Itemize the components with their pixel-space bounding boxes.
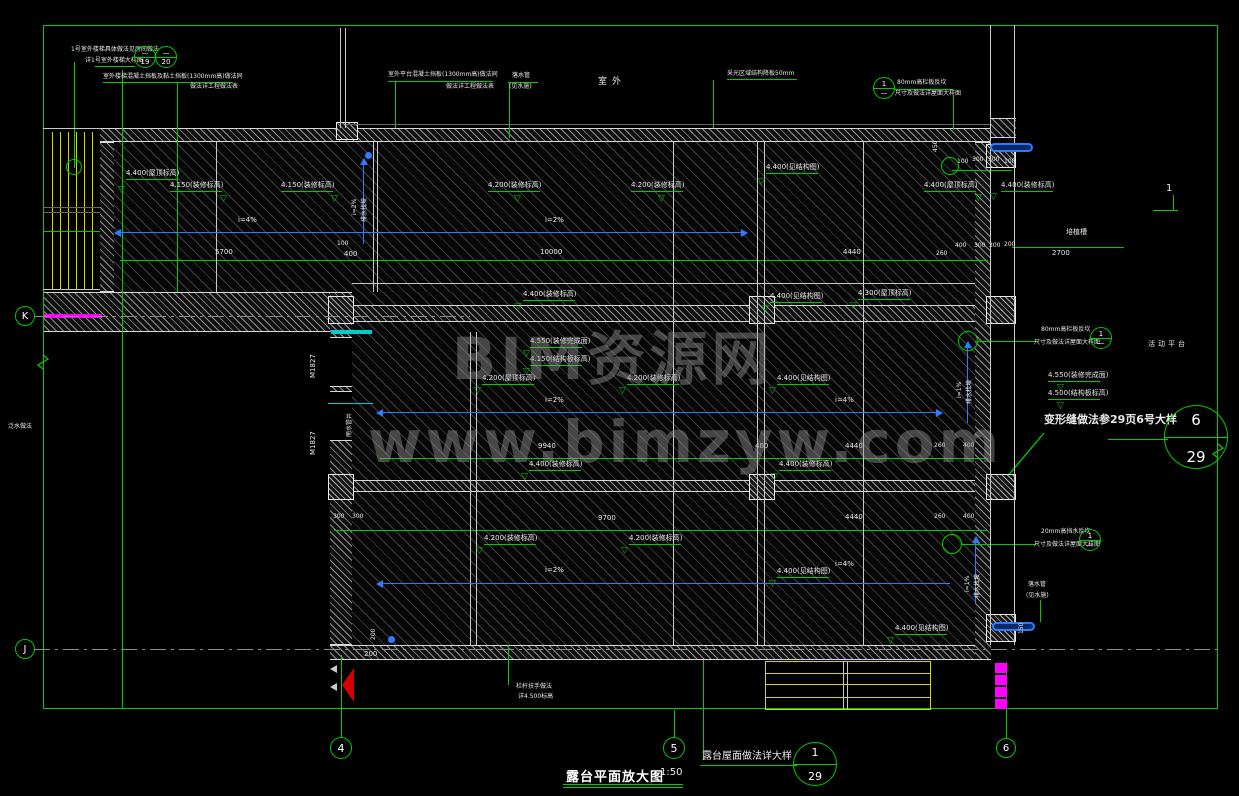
drawing-line [962, 544, 1036, 545]
drawing-line [930, 661, 931, 710]
annotation-text: 200 [1004, 242, 1015, 248]
drawing-line [43, 128, 100, 129]
annotation-text: 详4.500标高 [518, 694, 553, 700]
annotation-text: 落水管 [512, 73, 530, 79]
elevation-label: 4.400(见结构图) [895, 625, 949, 632]
elevation-label: 4.200(装修标高) [484, 535, 538, 542]
wall [43, 292, 352, 332]
annotation-text: 80mm高栏板反坎 [897, 80, 946, 86]
annotation-text: 300 [352, 514, 363, 520]
annotation-text: 4440 [845, 514, 863, 521]
elevation-underline [1048, 381, 1100, 382]
elevation-underline [126, 179, 178, 180]
elevation-triangle: ▽ [220, 195, 227, 204]
annotation-text: (见水施) [509, 84, 532, 90]
elevation-label: 4.400(见结构图) [766, 164, 820, 171]
elevation-label: 4.200(装修标高) [488, 182, 542, 189]
annotation-text: 400 [955, 243, 966, 249]
annotation-text: M1827 [310, 354, 317, 378]
stair-treads [45, 132, 99, 287]
drawing-line [674, 710, 675, 738]
drawing-line [508, 645, 509, 685]
watermark-line2: www.bimzyw.com [368, 408, 1003, 476]
wall [352, 480, 975, 492]
elevation-label: 4.150(装修标高) [170, 182, 224, 189]
annotation-text: 活动平台 [1148, 341, 1188, 348]
drawing-line [120, 232, 745, 233]
elevation-label: 4.400(见结构图) [777, 568, 831, 575]
drawing-line [43, 207, 100, 208]
drain-pipe [990, 143, 1033, 152]
wall [990, 118, 1016, 138]
drawing-line [43, 231, 100, 232]
annotation-text: 5700 [215, 249, 233, 256]
drawing-line [978, 341, 1036, 342]
elevation-underline [895, 634, 947, 635]
grid-bubble: 4 [330, 737, 352, 759]
stair-treads [45, 276, 99, 289]
drawing-line [765, 684, 931, 685]
annotation-text: 100 [337, 241, 348, 247]
drawing-line [334, 530, 988, 531]
watermark-line1: BIM资源网 [452, 312, 774, 396]
wall [330, 386, 352, 392]
drawing-line [1173, 195, 1174, 211]
drawing-line [727, 79, 797, 80]
elevation-label: 4.300(屋顶标高) [858, 290, 912, 297]
elevation-underline [777, 384, 829, 385]
drawing-line [43, 25, 1218, 26]
grid-dash-line [34, 649, 1217, 650]
annotation-text: i=4% [835, 397, 854, 404]
elevation-underline [629, 544, 681, 545]
section-flag [342, 668, 354, 702]
annotation-text: 4440 [843, 249, 861, 256]
elevation-triangle: ▽ [514, 195, 521, 204]
elevation-triangle: ▽ [975, 194, 982, 203]
annotation-text: 260 [936, 251, 947, 257]
annotation-text: 150 [1019, 623, 1025, 634]
drawing-title: 露台平面放大图 [566, 766, 664, 785]
elevation-triangle: ▽ [758, 178, 765, 187]
detail-bubble: 629 [1164, 405, 1228, 469]
drawing-line [765, 709, 931, 710]
magenta-block [995, 663, 1007, 673]
annotation-text: 300 [972, 157, 983, 163]
drawing-line [377, 142, 378, 292]
wall [100, 128, 990, 142]
elevation-label: 4.400(屋顶标高) [924, 182, 978, 189]
drawing-line [863, 142, 864, 645]
elevation-triangle: ▽ [1057, 402, 1064, 411]
drawing-line [952, 170, 1012, 171]
annotation-text: 10000 [540, 249, 562, 256]
elevation-underline [777, 577, 829, 578]
annotation-text: 300 [333, 514, 344, 520]
elevation-triangle: ▽ [850, 302, 857, 311]
drawing-line [74, 62, 75, 168]
wall [330, 645, 990, 660]
drawing-line [990, 25, 991, 645]
detail-bubble: —20 [155, 46, 177, 68]
arrowhead [376, 580, 383, 588]
annotation-text: 做法详工程做法表 [190, 84, 238, 90]
elevation-triangle: ▽ [118, 186, 125, 195]
annotation-text: 变形缝做法参29页6号大样 [1044, 414, 1177, 426]
drain-pipe [992, 622, 1035, 631]
annotation-text: 300 [974, 243, 985, 249]
drawing-line [703, 660, 704, 760]
drawing-line [1153, 210, 1178, 211]
elevation-label: 4.200(装修标高) [631, 182, 685, 189]
detail-bubble: —19 [134, 46, 156, 68]
elevation-label: 4.400(装修标高) [523, 291, 577, 298]
elevation-triangle: ▽ [621, 547, 628, 556]
annotation-text: 排水找坡 [975, 574, 981, 598]
elevation-underline [484, 544, 536, 545]
drawing-line [843, 661, 844, 710]
elevation-underline [924, 191, 976, 192]
elevation-underline [1048, 399, 1100, 400]
drawing-line [373, 142, 374, 292]
grid-bubble: 6 [996, 738, 1016, 758]
elevation-label: 4.400(见结构图) [770, 293, 824, 300]
elevation-triangle: ▽ [476, 547, 483, 556]
arrowhead [360, 158, 368, 165]
grid-bubble: 5 [663, 737, 685, 759]
arrowhead [741, 229, 748, 237]
elevation-triangle: ▽ [990, 193, 997, 202]
detail-bubble: 129 [793, 742, 837, 786]
annotation-text: 落水管 [1028, 582, 1046, 588]
wall [100, 142, 114, 292]
drawing-line [395, 81, 396, 128]
elevation-label: 4.400(见结构图) [777, 375, 831, 382]
hatched-floor-area [100, 142, 975, 292]
drawing-line [765, 697, 931, 698]
annotation-text: i=2% [545, 397, 564, 404]
elevation-label: 4.500(结构板标高) [1048, 390, 1109, 397]
drawing-line [847, 661, 848, 710]
magenta-block [995, 675, 1007, 685]
drawing-line [380, 583, 950, 584]
drawing-line [95, 66, 135, 67]
drawing-line [345, 28, 346, 128]
leader-head-circle [942, 534, 962, 554]
drawing-line [43, 289, 100, 290]
drawing-line [713, 80, 714, 128]
detail-bubble: 1— [1079, 529, 1101, 551]
drawing-line [120, 260, 988, 261]
magenta-block [995, 699, 1007, 709]
annotation-text: i=1% [957, 382, 963, 398]
annotation-text: 400 [344, 251, 357, 258]
elevation-underline [523, 300, 575, 301]
annotation-text: (见水施) [1026, 593, 1049, 599]
annotation-text: 1 [1166, 184, 1172, 195]
elevation-triangle: ▽ [658, 195, 665, 204]
elevation-underline [770, 302, 822, 303]
drain-dot [388, 636, 395, 643]
annotation-text: i=2% [352, 199, 358, 215]
drawing-line [43, 708, 1218, 709]
drawing-line [563, 787, 683, 788]
drawing-line [765, 661, 931, 662]
annotation-text: i=1% [965, 576, 971, 592]
annotation-text: 400 [963, 514, 974, 520]
annotation-text: 培植槽 [1066, 229, 1087, 236]
annotation-text: 200 [371, 629, 377, 640]
annotation-text: i=2% [545, 567, 564, 574]
leader-head-circle [958, 331, 978, 351]
arrowhead [330, 665, 337, 673]
elevation-underline [281, 191, 333, 192]
annotation-text: 80mm高栏板反坎 [1041, 327, 1090, 333]
detail-bubble: 1— [873, 77, 895, 99]
drawing-line [340, 28, 341, 128]
annotation-text: 200 [364, 651, 377, 658]
wall [330, 440, 352, 645]
arrowhead [114, 229, 121, 237]
drawing-line [216, 142, 217, 292]
drawing-line [352, 283, 975, 284]
elevation-label: 4.150(装修标高) [281, 182, 335, 189]
column [328, 474, 354, 500]
elevation-label: 4.550(装修完成面) [1048, 372, 1109, 379]
magenta-block [995, 687, 1007, 697]
annotation-text: 450 [933, 141, 939, 152]
elevation-underline [1001, 191, 1053, 192]
annotation-text: 雨水管井 [347, 413, 353, 437]
annotation-text: 栏杆扶手做法 [516, 684, 552, 690]
elevation-triangle: ▽ [887, 637, 894, 646]
elevation-label: 4.400(屋顶标高) [126, 170, 180, 177]
elevation-triangle: ▽ [331, 195, 338, 204]
annotation-text: 采光区域结构降板50mm [727, 71, 794, 77]
annotation-text: 室外平台混凝土挡板(1300mm高)做法同 [388, 72, 498, 78]
drawing-line [765, 661, 766, 710]
detail-bubble: 1— [1090, 327, 1112, 349]
elevation-label: 4.400(装修标高) [1001, 182, 1055, 189]
annotation-text: 300 [988, 157, 999, 163]
roof-detail-note: 露台屋面做法详大样 [702, 752, 792, 763]
drawing-line [388, 81, 493, 82]
drawing-line [345, 124, 990, 125]
drawing-line [700, 765, 797, 766]
annotation-text: 尺寸及做法详屋面大样图 [895, 91, 961, 97]
annotation-text: 室外楼梯混凝土挡板及黏土挡板(1300mm高)做法同 [103, 74, 243, 80]
drawing-line [43, 212, 100, 213]
elevation-underline [488, 191, 540, 192]
leader-head-circle [66, 159, 82, 175]
annotation-text: 300 [989, 243, 1000, 249]
elevation-underline [766, 173, 818, 174]
drawing-line [509, 82, 510, 138]
annotation-text: i=4% [238, 217, 257, 224]
annotation-text: 排水找坡 [362, 198, 368, 222]
drawing-line [331, 330, 372, 334]
annotation-text: 泛水做法 [8, 424, 32, 430]
annotation-text: 9700 [598, 515, 616, 522]
drawing-line [328, 403, 373, 404]
drawing-line [1012, 247, 1124, 248]
elevation-underline [858, 299, 910, 300]
drawing-line [765, 673, 931, 674]
annotation-text: 100 [1004, 159, 1015, 165]
elevation-label: 4.200(装修标高) [629, 535, 683, 542]
drawing-line [122, 70, 123, 708]
annotation-text: i=4% [835, 561, 854, 568]
drawing-line [1014, 25, 1015, 645]
arrowhead [330, 683, 337, 691]
leader-head-circle [941, 157, 959, 175]
drawing-line [1040, 600, 1041, 622]
elevation-underline [631, 191, 683, 192]
elevation-triangle: ▽ [515, 303, 522, 312]
annotation-text: 做法详工程做法表 [446, 84, 494, 90]
cad-drawing-canvas: 1号室外楼梯具体做法见房间做法详1号室外楼梯大样图室外楼梯混凝土挡板及黏土挡板(… [0, 0, 1239, 796]
grid-dash-line [34, 316, 470, 317]
grid-bubble: K [15, 306, 35, 326]
grid-bubble: J [15, 639, 35, 659]
annotation-text: 2700 [1052, 250, 1070, 257]
annotation-text: M1827 [310, 431, 317, 455]
drawing-line [1217, 25, 1218, 709]
annotation-text: 260 [934, 514, 945, 520]
arrowhead [972, 536, 980, 543]
drawing-line [1108, 439, 1168, 440]
annotation-text: 室外 [598, 78, 626, 87]
drawing-scale: 1:50 [660, 768, 682, 779]
column [328, 296, 354, 324]
annotation-text: i=2% [545, 217, 564, 224]
elevation-underline [170, 191, 222, 192]
annotation-text: 排水找坡 [967, 380, 973, 404]
elevation-triangle: ▽ [769, 580, 776, 589]
